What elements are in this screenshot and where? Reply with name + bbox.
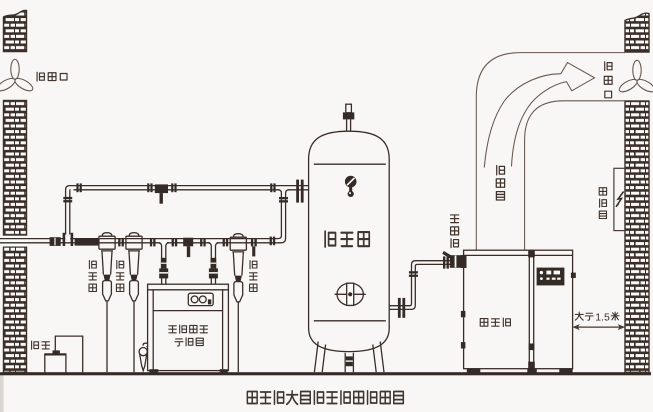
svg-text:1.5: 1.5	[595, 311, 610, 323]
